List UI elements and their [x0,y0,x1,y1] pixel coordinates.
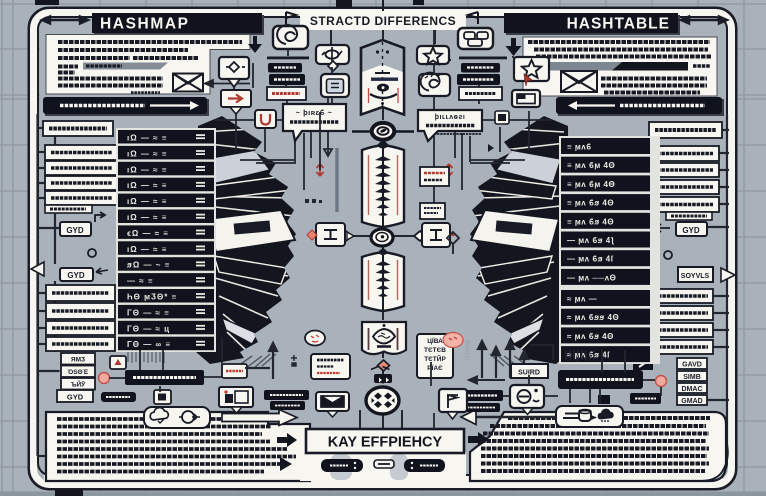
svg-text:ЯМӠ: ЯМӠ [71,357,85,364]
svg-text:ıΩ — ≈ ≡: ıΩ — ≈ ≡ [127,197,167,206]
svg-text:HASHMAP: HASHMAP [100,16,190,33]
svg-text:ıΩ — ≈ ≡: ıΩ — ≈ ≡ [127,181,167,190]
svg-text:≈ ϻʌ —: ≈ ϻʌ — [567,295,597,304]
svg-text:~ ϸıʀɛϐ ~: ~ ϸıʀɛϐ ~ [296,108,333,117]
svg-text:РΪАЄ: РΪАЄ [427,364,443,372]
svg-text:GYD: GYD [66,226,84,235]
svg-text:≡ ϻʌ ϐϻ 4Θ: ≡ ϻʌ ϐϻ 4Θ [567,161,615,170]
svg-text:ΌЅΘΈ: ΌЅΘΈ [67,369,89,376]
svg-text:SOYVLS: SOYVLS [681,273,710,280]
svg-text:KAY EFFPIEHCY: KAY EFFPIEHCY [328,435,443,451]
svg-text:ТЄТЄВ: ТЄТЄВ [424,347,446,354]
svg-text:ΓΘ — ∞ ≡: ΓΘ — ∞ ≡ [127,340,171,349]
svg-text:ΓΘ — ≈ ц: ΓΘ — ≈ ц [127,324,170,333]
svg-text:ϧΩ — ~ ≡: ϧΩ — ~ ≡ [127,261,170,270]
svg-text:ҺΘ ϻӠΘ* ≡: ҺΘ ϻӠΘ* ≡ [127,293,177,302]
svg-text:HASHTABLE: HASHTABLE [567,16,670,33]
svg-text:— ϻʌ ϐϧ 4ſ: — ϻʌ ϐϧ 4ſ [567,255,614,264]
svg-text:STRACTD DIFFERENCS: STRACTD DIFFERENCS [310,14,456,28]
svg-text:ıΩ — ≈ ≡: ıΩ — ≈ ≡ [127,134,167,143]
svg-text:— ϻʌ ──ʌΘ: — ϻʌ ──ʌΘ [567,273,616,282]
svg-text:ϵΩ — ≈ ≡: ϵΩ — ≈ ≡ [127,229,169,238]
svg-text:GYD: GYD [67,271,85,280]
svg-text:ΓΘ — ≈ ≡: ΓΘ — ≈ ≡ [127,308,170,317]
svg-text:ıΩ — ≈ ≡: ıΩ — ≈ ≡ [127,165,167,174]
svg-text:≡ ϻʌ ϐϧ 4Θ: ≡ ϻʌ ϐϧ 4Θ [567,199,614,208]
svg-text:UTYPS: UTYPS [466,340,472,360]
svg-text:GYD: GYD [682,226,700,235]
svg-text:ıΩ — ≈ ≡: ıΩ — ≈ ≡ [127,245,167,254]
svg-text:GYD: GYD [67,393,84,402]
svg-text:ıΩ — ≈ ≡: ıΩ — ≈ ≡ [127,213,167,222]
svg-text:ϸıʟʟʌѳƨı: ϸıʟʟʌѳƨı [435,114,466,121]
svg-text:GAVD: GAVD [682,362,702,369]
svg-text:— ϻʌ ϐϧ 4ƪ: — ϻʌ ϐϧ 4ƪ [567,236,615,245]
svg-text:ТЄТЙР: ТЄТЙР [424,354,446,363]
svg-text:SIMB: SIMB [683,374,701,381]
svg-text:≈ ϻʌ ϐϧ 4Θ: ≈ ϻʌ ϐϧ 4Θ [567,332,614,341]
svg-text:ЦΪВА: ЦΪВА [427,337,443,345]
svg-text:≈ ϻʌ ϐϧϧ 4Θ: ≈ ϻʌ ϐϧϧ 4Θ [567,313,619,322]
svg-text:ıΩ — ≈ ≡: ıΩ — ≈ ≡ [127,149,167,158]
svg-text:≡ ϻʌϐ: ≡ ϻʌϐ [567,143,592,152]
svg-text:≡ ϻʌ ϐϻ 4ϴ: ≡ ϻʌ ϐϻ 4ϴ [567,180,615,189]
svg-text:DMAC: DMAC [682,386,703,393]
svg-text:≡ ϻʌ ϐϧ 4Θ: ≡ ϻʌ ϐϧ 4Θ [567,217,614,226]
svg-text:— ≈ ≡: — ≈ ≡ [127,277,154,286]
svg-text:GMAD: GMAD [681,398,702,405]
svg-text:ЪЙӮ: ЪЙӮ [71,380,86,389]
